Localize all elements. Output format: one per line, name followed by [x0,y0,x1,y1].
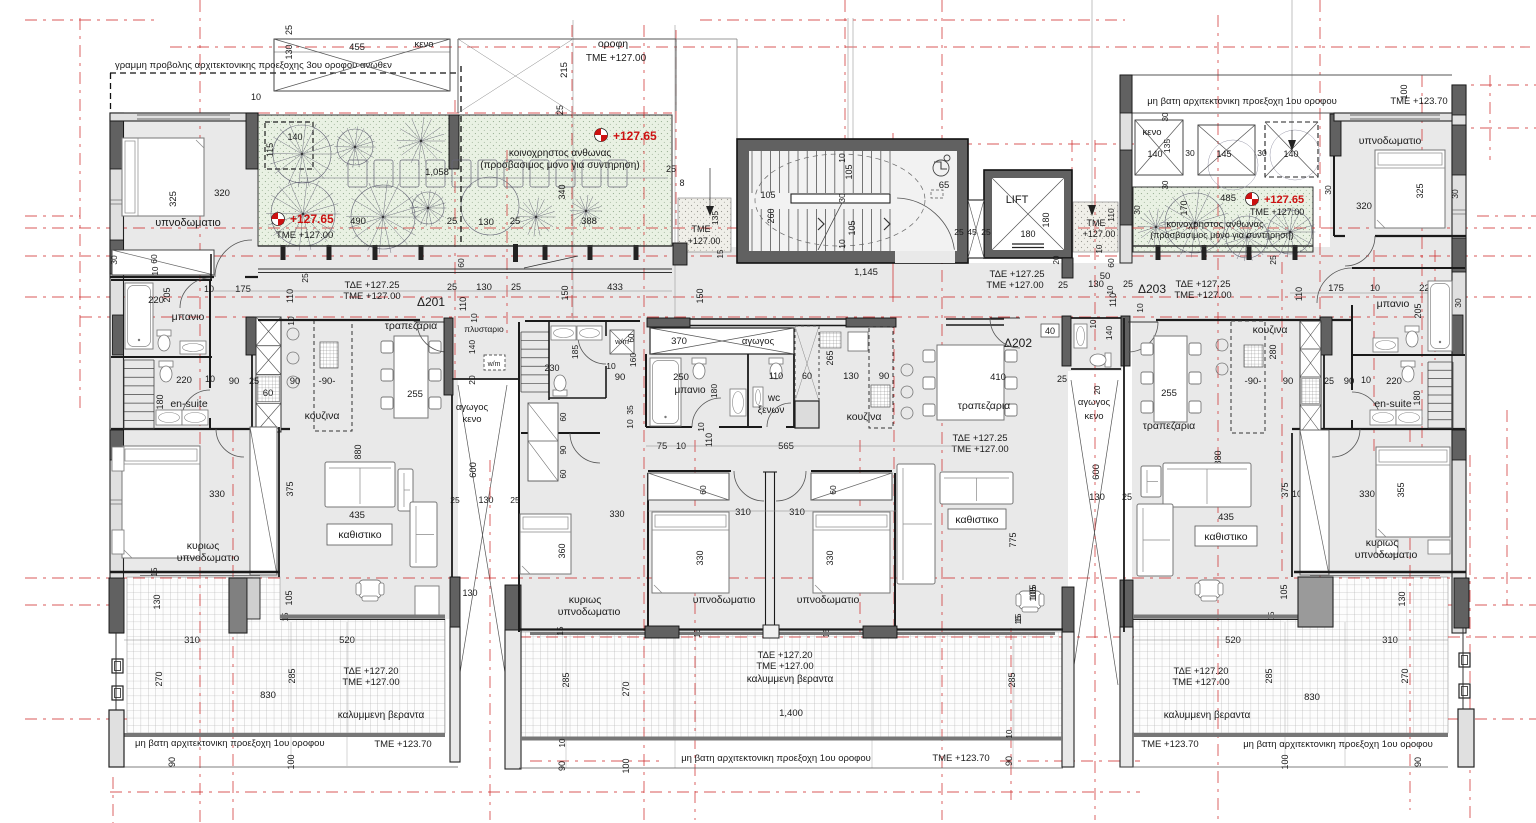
svg-text:wc: wc [767,393,780,404]
svg-text:30: 30 [1161,180,1170,189]
svg-text:435: 435 [349,510,365,521]
svg-text:25: 25 [447,282,457,292]
svg-text:215: 215 [559,62,570,78]
svg-text:60: 60 [802,371,812,381]
svg-text:10: 10 [1135,303,1145,313]
svg-text:410: 410 [990,372,1006,383]
svg-text:καλυμμενη βεραντα: καλυμμενη βεραντα [338,710,425,721]
svg-text:en-suite: en-suite [170,398,208,410]
svg-text:25: 25 [555,105,565,115]
svg-text:8: 8 [679,178,684,188]
svg-text:25: 25 [300,273,310,283]
svg-text:10: 10 [625,419,635,429]
svg-text:μη βατη αρχιτεκτονικη προεξοχη: μη βατη αρχιτεκτονικη προεξοχη 1ου οροφο… [1243,739,1433,750]
svg-text:130: 130 [478,495,493,505]
svg-text:100: 100 [1399,84,1409,99]
svg-text:ΤΜΕ +127.00: ΤΜΕ +127.00 [1172,677,1229,688]
svg-text:ΤΔΕ +127.25: ΤΔΕ +127.25 [989,269,1044,280]
svg-text:10: 10 [205,374,215,384]
svg-text:1,058: 1,058 [425,167,449,178]
svg-text:10: 10 [558,738,567,747]
svg-text:καθιστικο: καθιστικο [338,529,381,541]
svg-text:60: 60 [627,333,636,342]
svg-text:TME +123.70: TME +123.70 [1141,739,1198,750]
svg-text:αγωγος: αγωγος [456,402,489,413]
svg-text:330: 330 [209,489,225,500]
svg-text:15: 15 [1014,613,1023,622]
svg-text:375: 375 [1280,482,1290,497]
svg-text:μη βατη αρχιτεκτονικη προεξοχη: μη βατη αρχιτεκτονικη προεξοχη 1ου οροφο… [1147,96,1337,107]
svg-text:255: 255 [407,389,423,400]
svg-text:110: 110 [1294,287,1304,301]
svg-text:180: 180 [1412,390,1422,405]
svg-text:ΤΔΕ +127.25: ΤΔΕ +127.25 [952,433,1007,444]
svg-text:205: 205 [162,287,172,302]
svg-text:ΤΜΕ +127.00: ΤΜΕ +127.00 [342,677,399,688]
svg-text:65: 65 [939,180,950,191]
svg-text:1,400: 1,400 [779,708,803,719]
svg-text:270: 270 [1400,668,1410,683]
svg-text:10: 10 [606,361,616,371]
svg-text:330: 330 [825,550,835,565]
svg-text:en-suite: en-suite [1374,398,1412,410]
svg-text:265: 265 [825,350,835,365]
svg-text:κουζινα: κουζινα [305,410,340,422]
svg-text:40: 40 [1045,326,1055,336]
svg-text:μη βατη αρχιτεκτονικη προεξοχη: μη βατη αρχιτεκτονικη προεξοχη 1ου οροφο… [681,753,871,764]
svg-text:TME: TME [1087,218,1106,228]
svg-text:320: 320 [214,188,230,199]
svg-text:TME +127.00: TME +127.00 [586,53,647,64]
svg-text:600: 600 [1091,464,1102,480]
svg-text:90: 90 [290,376,301,387]
svg-text:25: 25 [1324,376,1334,386]
svg-text:30: 30 [1161,112,1170,121]
svg-text:285: 285 [1264,668,1274,683]
svg-text:κυριως: κυριως [569,594,602,606]
svg-text:30: 30 [1323,185,1333,195]
svg-text:30: 30 [1453,298,1463,308]
svg-text:180: 180 [155,394,165,409]
svg-text:110: 110 [1106,208,1116,222]
svg-text:10: 10 [1089,319,1098,328]
svg-text:LIFT: LIFT [1006,194,1029,206]
svg-text:15: 15 [150,567,159,576]
svg-text:100: 100 [1280,754,1290,769]
svg-text:Δ201: Δ201 [417,295,445,309]
svg-text:οροφη: οροφη [598,38,628,50]
svg-text:25: 25 [284,25,294,35]
svg-text:ΤΜΕ +127.00: ΤΜΕ +127.00 [951,444,1008,455]
svg-text:330: 330 [609,509,624,519]
svg-text:325: 325 [168,191,179,207]
svg-text:κουζινα: κουζινα [847,411,882,423]
svg-text:830: 830 [1304,692,1320,703]
svg-text:360: 360 [557,543,567,558]
svg-text:255: 255 [1161,388,1177,399]
svg-text:35: 35 [625,405,635,415]
svg-text:ΤΜΕ +127.00: ΤΜΕ +127.00 [343,291,400,302]
svg-text:310: 310 [184,635,200,646]
svg-text:310: 310 [789,507,805,518]
svg-text:60: 60 [828,485,838,495]
svg-text:καλυμμενη βεραντα: καλυμμενη βεραντα [1164,710,1251,721]
svg-text:κενο: κενο [462,414,481,425]
svg-text:280: 280 [1268,344,1278,359]
svg-text:105: 105 [1028,584,1038,599]
svg-text:+127.65: +127.65 [1264,194,1304,206]
svg-text:15: 15 [716,249,725,258]
svg-text:90: 90 [1413,757,1423,767]
svg-text:(προσβασιμος μονο για συντηρησ: (προσβασιμος μονο για συντηρηση) [480,160,639,171]
svg-text:60: 60 [149,254,159,264]
svg-text:κουζινα: κουζινα [1253,324,1288,336]
svg-text:καθιστικο: καθιστικο [955,514,998,526]
svg-text:25: 25 [510,216,521,227]
svg-text:285: 285 [561,672,571,687]
svg-text:260: 260 [766,208,776,223]
svg-text:105: 105 [284,590,294,605]
svg-text:κυριως: κυριως [1366,537,1399,549]
svg-text:κοινοχρηστος ανθωνας: κοινοχρηστος ανθωνας [1166,219,1264,230]
svg-text:υπνοδωματιο: υπνοδωματιο [155,217,221,229]
svg-text:υπνοδωματιο: υπνοδωματιο [177,552,240,564]
svg-text:τραπεζαρια: τραπεζαρια [1143,420,1196,432]
svg-text:10: 10 [151,266,160,275]
svg-text:105: 105 [847,220,857,235]
svg-text:υπνοδωματιο: υπνοδωματιο [558,606,621,618]
svg-text:25: 25 [1058,280,1068,290]
svg-text:45: 45 [967,227,977,237]
svg-text:880: 880 [353,444,363,459]
svg-text:130: 130 [478,217,494,228]
svg-text:175: 175 [1328,283,1344,294]
svg-text:30: 30 [1450,189,1460,199]
svg-text:ΤΜΕ +127.00: ΤΜΕ +127.00 [1174,290,1231,301]
svg-text:10: 10 [469,313,479,323]
svg-text:ΤΔΕ +127.25: ΤΔΕ +127.25 [1175,279,1230,290]
svg-text:25: 25 [954,227,964,237]
svg-text:433: 433 [607,282,623,293]
svg-text:TME: TME [692,224,711,234]
svg-text:135: 135 [710,211,720,225]
svg-text:520: 520 [339,635,355,646]
svg-text:775: 775 [1008,532,1018,547]
svg-text:130: 130 [1088,279,1104,290]
svg-text:600: 600 [468,462,479,478]
svg-text:180: 180 [1041,212,1051,227]
svg-text:140: 140 [1147,149,1162,159]
svg-text:10: 10 [251,92,261,102]
svg-text:110: 110 [704,433,714,447]
svg-text:καλυμμενη βεραντα: καλυμμενη βεραντα [747,674,834,685]
svg-text:-90-: -90- [1245,376,1262,387]
svg-text:830: 830 [260,690,276,701]
svg-text:60: 60 [559,469,568,478]
svg-text:+127.65: +127.65 [290,212,334,226]
svg-text:TME +127.00: TME +127.00 [276,230,333,241]
svg-text:105: 105 [760,190,775,200]
svg-text:325: 325 [1415,183,1425,198]
svg-text:+127.00: +127.00 [688,236,721,246]
svg-text:185: 185 [570,345,580,359]
svg-text:10: 10 [1095,244,1104,253]
svg-text:πλυσταριο: πλυσταριο [464,324,504,334]
svg-text:330: 330 [1359,489,1375,500]
svg-text:ΤΔΕ +127.25: ΤΔΕ +127.25 [344,280,399,291]
svg-text:10: 10 [1361,375,1371,385]
svg-text:25: 25 [249,376,259,386]
svg-text:150: 150 [560,285,570,300]
svg-text:ΤΔΕ +127.20: ΤΔΕ +127.20 [343,666,398,677]
svg-text:150: 150 [695,288,705,303]
svg-text:30: 30 [1132,205,1142,215]
svg-text:105: 105 [844,164,854,179]
svg-text:25: 25 [1057,374,1067,384]
svg-text:388: 388 [581,216,597,227]
svg-text:TME +127.00: TME +127.00 [1250,207,1304,217]
svg-text:αγωγος: αγωγος [1078,397,1111,408]
svg-text:κοινοχρηστος ανθωνας: κοινοχρηστος ανθωνας [509,148,612,159]
svg-text:TME +123.70: TME +123.70 [374,739,431,750]
svg-text:κενο: κενο [1142,127,1161,138]
svg-text:TME +123.70: TME +123.70 [932,753,989,764]
svg-text:455: 455 [349,42,365,53]
svg-text:145: 145 [1216,149,1231,159]
svg-text:10: 10 [837,239,847,249]
svg-text:180: 180 [1020,229,1035,239]
svg-text:10: 10 [1005,729,1014,738]
svg-text:αγωγος: αγωγος [742,336,775,347]
svg-text:490: 490 [350,216,366,227]
svg-text:20: 20 [1093,385,1102,394]
svg-text:355: 355 [1396,482,1406,497]
svg-text:Δ203: Δ203 [1138,282,1166,296]
svg-text:270: 270 [154,671,164,686]
svg-text:435: 435 [1218,512,1234,523]
svg-text:20: 20 [1052,255,1061,264]
svg-text:110: 110 [1108,293,1118,307]
svg-text:90: 90 [615,372,626,383]
svg-text:90: 90 [1344,376,1355,387]
svg-text:15: 15 [556,626,565,635]
svg-text:60: 60 [263,388,274,399]
svg-text:μπανιο: μπανιο [172,311,205,323]
svg-text:25: 25 [666,164,676,174]
svg-text:υπνοδωματιο: υπνοδωματιο [693,594,756,606]
svg-text:520: 520 [1225,635,1241,646]
svg-text:140: 140 [1283,149,1298,159]
svg-text:485: 485 [1220,193,1236,204]
svg-text:ΤΔΕ +127.20: ΤΔΕ +127.20 [757,650,812,661]
svg-text:130: 130 [152,594,162,609]
svg-text:υπνοδωματιο: υπνοδωματιο [1359,135,1422,147]
svg-text:10: 10 [1370,283,1380,293]
svg-text:25: 25 [981,227,991,237]
svg-text:60: 60 [456,258,466,268]
svg-text:135: 135 [1162,139,1172,153]
svg-text:270: 270 [621,681,631,696]
svg-text:90: 90 [557,761,567,771]
svg-text:205: 205 [1413,303,1423,318]
svg-text:+127.00: +127.00 [1083,229,1116,239]
svg-text:60: 60 [698,485,708,495]
svg-text:ΤΜΕ +127.00: ΤΜΕ +127.00 [756,661,813,672]
svg-text:10: 10 [837,153,847,163]
svg-text:330: 330 [695,550,705,565]
svg-text:130: 130 [843,371,859,382]
svg-text:κενο: κενο [1084,411,1103,422]
svg-text:90: 90 [229,376,240,387]
svg-text:τραπεζαρια: τραπεζαρια [958,400,1011,412]
svg-text:90: 90 [167,757,177,767]
svg-text:375: 375 [285,481,295,496]
svg-text:370: 370 [671,336,687,347]
svg-text:25: 25 [1268,255,1278,265]
svg-text:1,145: 1,145 [854,267,878,278]
svg-text:320: 320 [1356,201,1372,212]
svg-text:μη βατη αρχιτεκτονικη προεξοχη: μη βατη αρχιτεκτονικη προεξοχη 1ου οροφο… [135,738,325,749]
svg-text:285: 285 [1007,672,1017,687]
svg-text:κυριως: κυριως [187,540,220,552]
svg-text:κενο: κενο [414,39,433,50]
svg-text:110: 110 [769,371,783,381]
svg-text:130: 130 [1089,492,1105,503]
svg-text:130: 130 [1397,591,1407,606]
svg-text:ξενων: ξενων [758,405,785,416]
svg-text:110: 110 [458,297,468,311]
svg-text:220: 220 [176,375,192,386]
svg-text:60: 60 [559,412,568,421]
svg-text:285: 285 [287,668,297,683]
svg-text:25: 25 [1123,279,1133,289]
svg-text:565: 565 [778,441,794,452]
svg-text:230: 230 [544,363,559,373]
svg-text:130: 130 [284,44,294,59]
svg-text:250: 250 [673,372,689,383]
svg-text:310: 310 [1382,635,1398,646]
svg-text:ΤΔΕ +127.20: ΤΔΕ +127.20 [1173,666,1228,677]
svg-text:καθιστικο: καθιστικο [1204,531,1247,543]
svg-text:ΤΜΕ +127.00: ΤΜΕ +127.00 [986,280,1043,291]
svg-text:140: 140 [467,340,477,354]
svg-text:100: 100 [621,758,631,773]
svg-text:160: 160 [628,353,638,367]
svg-text:30: 30 [1185,148,1195,158]
svg-text:w/m: w/m [487,361,501,368]
svg-text:25: 25 [447,216,458,227]
svg-text:340: 340 [557,184,567,199]
svg-text:25: 25 [511,282,521,292]
svg-text:60: 60 [1106,258,1116,268]
svg-text:130: 130 [476,282,492,293]
svg-text:μπανιο: μπανιο [674,385,706,396]
svg-text:105: 105 [1279,584,1289,599]
svg-text:+127.65: +127.65 [613,129,657,143]
svg-text:90: 90 [559,445,568,454]
svg-text:90: 90 [1283,376,1294,387]
svg-text:140: 140 [1104,326,1114,340]
svg-text:10: 10 [696,422,706,432]
svg-text:220: 220 [1386,376,1402,387]
svg-text:170: 170 [1179,200,1189,215]
svg-text:75: 75 [657,441,668,452]
svg-text:310: 310 [735,507,751,518]
svg-text:180: 180 [709,384,719,398]
svg-text:90: 90 [879,371,890,382]
svg-text:υπνοδωματιο: υπνοδωματιο [1355,549,1418,561]
svg-text:(προσβασιμος μονο για συντηρησ: (προσβασιμος μονο για συντηρηση) [1150,230,1293,240]
svg-text:30: 30 [109,255,119,265]
svg-text:20: 20 [467,375,477,385]
svg-text:30: 30 [837,193,847,203]
svg-text:100: 100 [286,754,296,769]
svg-text:-90-: -90- [319,376,336,387]
svg-text:90: 90 [1004,756,1014,766]
svg-text:μπανιο: μπανιο [1377,298,1410,310]
svg-text:175: 175 [235,284,251,295]
svg-text:130: 130 [462,588,477,598]
svg-text:υπνοδωματιο: υπνοδωματιο [797,594,860,606]
